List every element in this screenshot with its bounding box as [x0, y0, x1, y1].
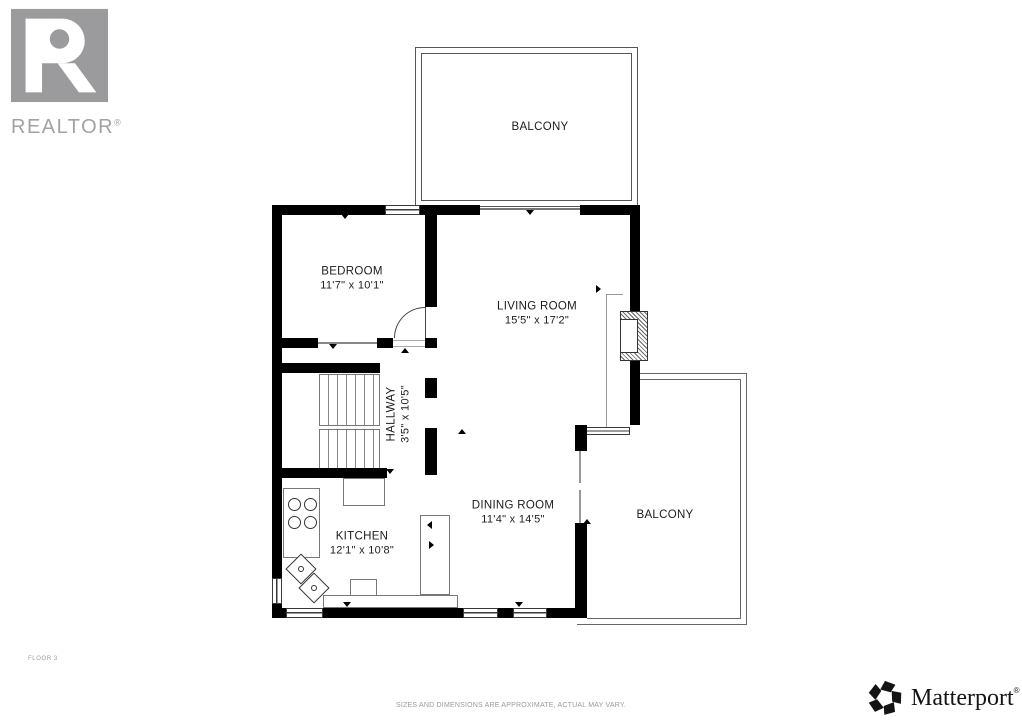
tick-marker	[339, 470, 347, 475]
wall	[272, 608, 286, 618]
room-name: KITCHEN	[330, 531, 394, 545]
realtor-wordmark: REALTOR®	[11, 116, 131, 139]
wall	[272, 205, 385, 215]
sink-drain	[298, 566, 304, 572]
wall	[282, 338, 318, 348]
room-name: BALCONY	[511, 121, 568, 135]
wall	[425, 428, 437, 475]
wall	[630, 361, 640, 425]
balcony-right-rail	[633, 379, 740, 380]
room-dims: 11'4" x 14'5"	[472, 513, 555, 526]
wall	[282, 363, 380, 373]
wall	[425, 338, 437, 348]
door-threshold	[393, 346, 425, 347]
balcony-right-rail	[746, 373, 747, 625]
room-label-dining-room: DINING ROOM 11'4" x 14'5"	[472, 500, 555, 527]
balcony-right-rail	[577, 624, 747, 625]
kitchen-appliance	[350, 579, 377, 596]
room-name: BALCONY	[636, 509, 693, 523]
tick-marker	[458, 429, 466, 434]
wall	[420, 205, 480, 215]
glass-door-gap	[576, 483, 584, 490]
window	[463, 608, 498, 618]
wall	[377, 338, 393, 348]
wall	[425, 215, 437, 307]
room-name: DINING ROOM	[472, 500, 555, 514]
fireplace-opening	[620, 319, 638, 353]
balcony-right-rail	[633, 373, 746, 374]
staircase-upper-flight	[319, 374, 380, 426]
window	[385, 205, 420, 215]
room-dims: 3'5" x 10'5"	[399, 385, 412, 443]
tick-marker	[386, 469, 394, 474]
stove-burner	[304, 516, 317, 529]
wall	[575, 523, 587, 618]
living-room-glass-line	[606, 294, 623, 295]
floorplan-page: REALTOR®	[0, 0, 1022, 722]
window	[272, 578, 282, 604]
wall	[323, 608, 463, 618]
tick-marker	[526, 210, 534, 215]
kitchen-counter-peninsula	[343, 478, 385, 506]
door-swing-arc	[394, 307, 425, 338]
room-label-balcony-top: BALCONY	[511, 121, 568, 135]
realtor-logo: REALTOR®	[11, 8, 131, 139]
realtor-wordmark-text: REALTOR	[11, 116, 114, 138]
balcony-right-rail	[740, 379, 741, 619]
wall	[498, 608, 513, 618]
room-label-living-room: LIVING ROOM 15'5" x 17'2"	[497, 301, 577, 328]
room-name: LIVING ROOM	[497, 301, 577, 315]
living-room-glass-line	[606, 294, 607, 427]
room-dims: 12'1" x 10'8"	[330, 544, 394, 557]
tick-marker	[341, 214, 349, 219]
door-leaf	[425, 307, 426, 338]
room-label-kitchen: KITCHEN 12'1" x 10'8"	[330, 531, 394, 558]
tick-marker	[596, 285, 601, 293]
tick-marker	[429, 541, 434, 549]
balcony-right-rail	[587, 618, 740, 619]
stove-burner	[288, 498, 301, 511]
tick-marker	[427, 521, 432, 529]
matterport-wordmark: Matterport	[911, 685, 1014, 712]
stove-burner	[288, 516, 301, 529]
tick-marker	[401, 348, 409, 353]
room-label-bedroom: BEDROOM 11'7" x 10'1"	[320, 266, 383, 293]
tick-marker	[515, 602, 523, 607]
kitchen-counter-right	[420, 515, 450, 595]
room-label-balcony-right: BALCONY	[636, 509, 693, 523]
window	[513, 608, 547, 618]
sink-drain	[311, 585, 317, 591]
floor-number-label: FLOOR 3	[28, 656, 58, 662]
wall	[630, 205, 640, 313]
room-name: BEDROOM	[320, 266, 383, 280]
wall	[575, 425, 587, 451]
realtor-registered-mark: ®	[114, 117, 122, 127]
stove-burner	[304, 498, 317, 511]
matterport-registered-mark: ®	[1014, 686, 1020, 695]
door-threshold	[393, 340, 425, 341]
window	[286, 608, 323, 618]
tick-marker	[329, 344, 337, 349]
room-dims: 15'5" x 17'2"	[497, 314, 577, 327]
room-name: HALLWAY	[386, 385, 400, 443]
window	[585, 427, 630, 435]
matterport-logo: Matterport ®	[866, 679, 1020, 717]
matterport-pinwheel-icon	[866, 679, 904, 717]
room-label-hallway: HALLWAY 3'5" x 10'5"	[386, 385, 413, 443]
wall	[282, 468, 387, 478]
tick-marker	[583, 519, 591, 524]
wall	[272, 205, 282, 578]
room-dims: 11'7" x 10'1"	[320, 279, 383, 292]
wall	[425, 378, 437, 398]
closet-sliding-door	[318, 342, 377, 344]
realtor-block-r-icon	[11, 8, 108, 103]
tick-marker	[343, 602, 351, 607]
